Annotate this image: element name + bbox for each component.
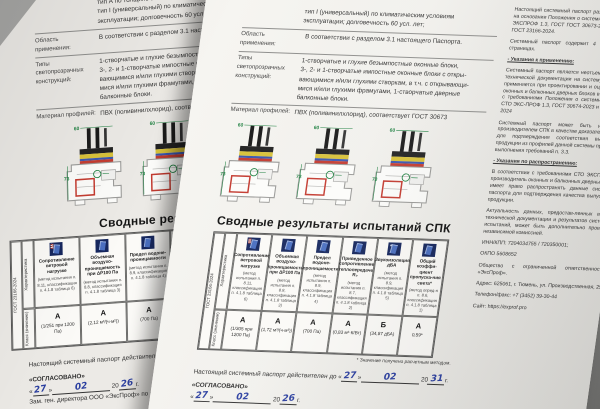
handwritten-year: 26 (120, 379, 133, 390)
test-result-cell: А(1,72 м³/(ч·м²)) (256, 310, 297, 351)
right-field-rows: Область применения:В соответствии с разд… (230, 27, 497, 124)
test-method-note: (метод испытания п. 8.8, классификация п… (264, 277, 299, 309)
test-results-table: ГОСТ 23166-2024ХарактеристикаКласс (знач… (197, 231, 450, 358)
field-label: Область применения: (239, 30, 305, 50)
test-result-cell: А(700 Па) (291, 312, 332, 353)
result-value: (1/251 при 1200 Па) (37, 322, 79, 336)
test-method-note: (метод испытания п. 8.11, классификация … (230, 270, 265, 302)
sidebar-paragraph: Системный паспорт содержит 4 раздела на … (509, 38, 600, 56)
document-page-right: тип I (универсальный) по климатическим у… (143, 0, 600, 409)
result-value: (1/305 при 1200 Па) (225, 326, 258, 339)
field-label: Материал профилей: (36, 109, 100, 123)
test-result-cell: А(0,83 м²·К/Вт) (326, 313, 367, 354)
sidebar-paragraph: ИНН/КПП: 7204034755 / 720350001; (481, 240, 600, 251)
result-class: А (227, 314, 259, 324)
svg-text:73: 73 (140, 171, 146, 177)
result-class: А (297, 317, 329, 327)
right-profile-diagrams: 6073 6073 6073 (215, 120, 483, 213)
window-photo-icon (422, 243, 437, 256)
test-name: Сопротивление ветровой нагрузке (36, 256, 78, 275)
document-field-row: Типы светопрозрачных конструкций:1-створ… (232, 51, 493, 109)
test-column-header: Объемная воздухо-проницаемость при ΔР100… (79, 234, 126, 305)
handwritten-day: 27 (34, 385, 47, 396)
sidebar-paragraph: Сайт: https://exprof.pro (472, 303, 600, 314)
class-value-row-label: Класс (значение) (23, 308, 36, 349)
sidebar-paragraph: Системный паспорт является неотъемлемой … (500, 67, 600, 119)
test-result-cell: А(1/251 при 1200 Па) (35, 305, 81, 348)
svg-text:60: 60 (74, 126, 80, 132)
sidebar-paragraph: Телефон/факс: +7 (3452) 39-30-44 (474, 292, 600, 303)
test-name: Сопротивление ветровой нагрузке (232, 251, 270, 269)
window-photo-icon (316, 239, 331, 252)
test-method-note: (метод опред-я п. 8.6, классификация п. … (405, 287, 440, 314)
field-label: Типы светопрозрачных конструкций: (35, 57, 100, 107)
window-photo-icon (141, 236, 154, 250)
test-method-note: (метод испытания п. 8.7, классификация п… (335, 279, 370, 311)
field-value-line: ПВХ (поливинилхлорид), соответствует ГОС… (294, 108, 486, 124)
handwritten-month: 02 (74, 382, 87, 393)
result-value: (0,83 м²·К/Вт) (331, 329, 363, 336)
test-column-header: Сопротивление ветровой нагрузке(метод ис… (33, 237, 80, 308)
result-class: А (402, 320, 434, 330)
window-photo-icon (352, 241, 367, 254)
right-page-content: тип I (универсальный) по климатическим у… (146, 0, 600, 409)
characteristic-row-label: Характеристика (22, 240, 35, 309)
test-result-cell: А(1/305 при 1200 Па) (221, 309, 262, 350)
test-method-note: (метод испытания п. 8.9, классификация п… (127, 263, 169, 281)
test-result-cell: А0,59* (397, 315, 438, 356)
test-name: Звукоизоляция дБА (374, 256, 410, 268)
test-name: Предел водоне-проницаемости (127, 250, 169, 264)
result-class: А (262, 316, 294, 326)
svg-text:60: 60 (313, 125, 320, 131)
window-profile-diagram: 6073 (367, 125, 447, 211)
field-value: ПВХ (поливинилхлорид), соответствует ГОС… (294, 108, 486, 124)
handwritten-year: 31 (430, 375, 443, 385)
window-photo-icon (387, 242, 402, 255)
window-photo-icon (50, 242, 63, 256)
test-result-cell: Б(34,87 дБА) (362, 314, 403, 355)
sidebar-heading: - Указания к применению: (507, 57, 600, 68)
window-profile-diagram: 6073 (291, 123, 371, 209)
window-photo-icon (281, 238, 296, 251)
test-name: Объемная воздухо-проницаемость при ΔР100… (81, 253, 123, 278)
window-photo-icon (246, 237, 261, 250)
validity-text: Настоящий системный паспорт действителен… (193, 368, 342, 380)
sidebar-paragraph: Актуальность данных, предостав-ленных в … (483, 208, 600, 240)
sidebar-paragraph: В соответствии с требованиями СТО ЭКСПРО… (487, 169, 600, 208)
test-method-note: (метод испытания п. 8.11, классификация … (36, 274, 78, 292)
year-suffix: г. (136, 381, 139, 388)
sidebar-paragraph: ОКПО 5608652 (480, 251, 600, 262)
handwritten-month: 02 (384, 373, 397, 383)
field-value: 1-створчатые и глухие безымпостные оконн… (296, 56, 493, 108)
window-photo-icon (96, 239, 109, 253)
result-class: А (82, 307, 124, 319)
test-name: Общий коэффи-циент пропуска-ния света* (409, 258, 444, 286)
right-intro-lines: тип I (универсальный) по климатическим у… (303, 7, 500, 33)
field-value-line: В соответствии с разделом 3.1 настоящего… (304, 33, 496, 49)
svg-text:73: 73 (64, 176, 70, 182)
right-footer: Настоящий системный паспорт действителен… (186, 366, 449, 409)
result-value: 0,59* (401, 332, 433, 339)
result-class: А (332, 318, 364, 328)
handwritten-day: 27 (195, 391, 208, 401)
result-value: (2,12 м³/(ч·м²)) (83, 318, 125, 327)
sidebar-heading: - Указания по распространению: (493, 158, 600, 169)
sidebar-paragraph: Системный паспорт может быть использован… (494, 120, 600, 159)
year-suffix: г. (296, 397, 300, 404)
photo-of-documents: тип А по толщине внешних сттип I (универ… (0, 0, 600, 409)
svg-text:60: 60 (389, 127, 396, 133)
svg-text:60: 60 (237, 122, 244, 128)
result-class: А (37, 310, 79, 322)
sidebar-paragraph: Настоящий системный паспорт разработан и… (511, 7, 600, 39)
sidebar-paragraph: Адрес: 625061, г. Тюмень, ул. Производст… (475, 280, 600, 291)
result-value: (34,87 дБА) (366, 331, 398, 338)
test-name: Объемная воздухо-проницаемость при ΔР100… (267, 253, 306, 276)
handwritten-month: 02 (236, 393, 249, 403)
test-result-cell: А(2,12 м³/(ч·м²)) (80, 302, 126, 345)
test-name: Предел водоне-проницаемости (303, 254, 341, 272)
window-profile-diagram: 6073 (215, 120, 295, 206)
result-value: (700 Па) (296, 328, 328, 335)
sidebar-paragraph: Общество с ограниченной ответственностью… (477, 262, 600, 280)
test-name: Приведенное сопротивление теплопередаче … (337, 255, 375, 278)
field-label: Типы светопрозрачных конструкций: (232, 54, 302, 102)
result-value: (1,72 м³/(ч·м²)) (261, 327, 293, 334)
handwritten-year: 26 (282, 394, 295, 404)
test-method-note: (метод испытания п. 8.9, классификация п… (300, 272, 335, 304)
field-label: Область применения: (35, 33, 99, 55)
test-method-note: (метод испытания п. 8.9, классификация п… (371, 269, 406, 301)
field-label: Материал профилей: (230, 106, 295, 117)
test-method-note: (метод испытания п. 8.8, классификация п… (82, 277, 124, 295)
result-class: Б (367, 319, 399, 329)
svg-text:60: 60 (150, 121, 156, 127)
window-profile-diagram: 6073 (62, 121, 131, 210)
handwritten-day: 27 (343, 371, 356, 381)
